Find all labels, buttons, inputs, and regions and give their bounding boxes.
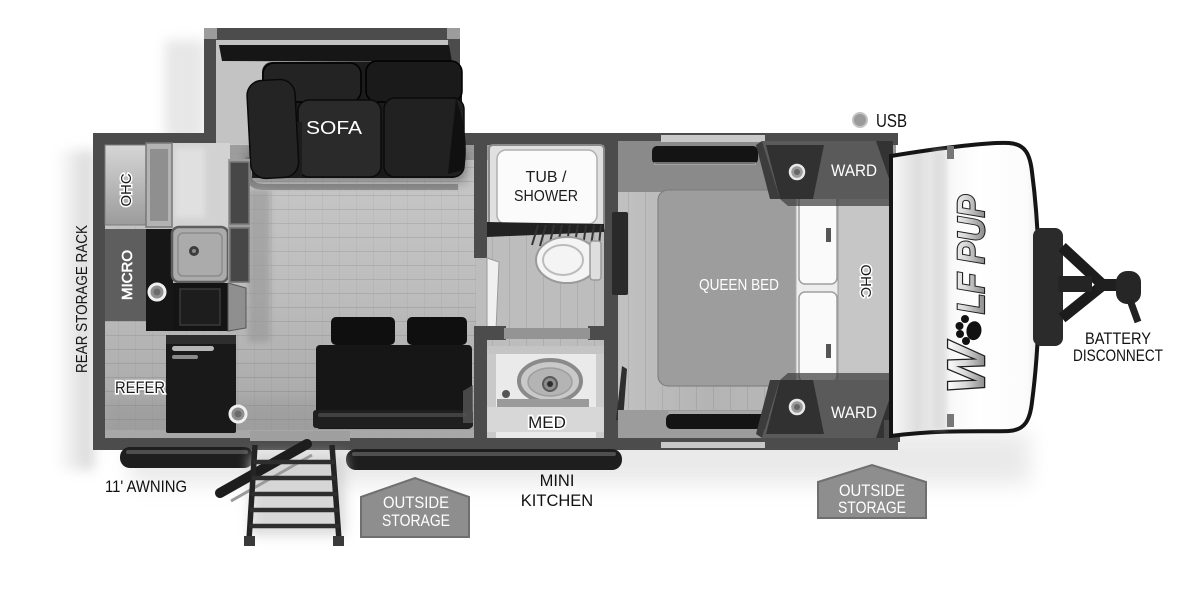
svg-text:STORAGE: STORAGE — [382, 511, 450, 530]
svg-text:QUEEN BED: QUEEN BED — [699, 277, 779, 294]
svg-text:OHC: OHC — [118, 173, 135, 207]
svg-text:LF PUP: LF PUP — [951, 194, 993, 314]
svg-text:REFER: REFER — [115, 378, 165, 397]
svg-text:KITCHEN: KITCHEN — [521, 492, 593, 510]
svg-text:USB: USB — [876, 111, 907, 131]
svg-text:W: W — [938, 340, 996, 393]
svg-text:MED: MED — [528, 413, 566, 432]
svg-text:SOFA: SOFA — [306, 118, 362, 138]
svg-text:TUB /: TUB / — [526, 169, 567, 186]
svg-text:11' AWNING: 11' AWNING — [105, 477, 187, 496]
svg-text:WARD: WARD — [831, 403, 877, 422]
svg-text:WARD: WARD — [831, 161, 877, 180]
svg-text:OUTSIDE: OUTSIDE — [383, 493, 449, 512]
svg-text:SHOWER: SHOWER — [514, 188, 578, 205]
svg-text:STORAGE: STORAGE — [838, 498, 906, 517]
svg-text:DISCONNECT: DISCONNECT — [1073, 346, 1163, 365]
svg-text:REAR STORAGE RACK: REAR STORAGE RACK — [74, 225, 91, 373]
svg-text:MICRO: MICRO — [119, 250, 136, 300]
svg-text:MINI: MINI — [540, 472, 575, 490]
svg-text:OHC: OHC — [857, 264, 874, 298]
